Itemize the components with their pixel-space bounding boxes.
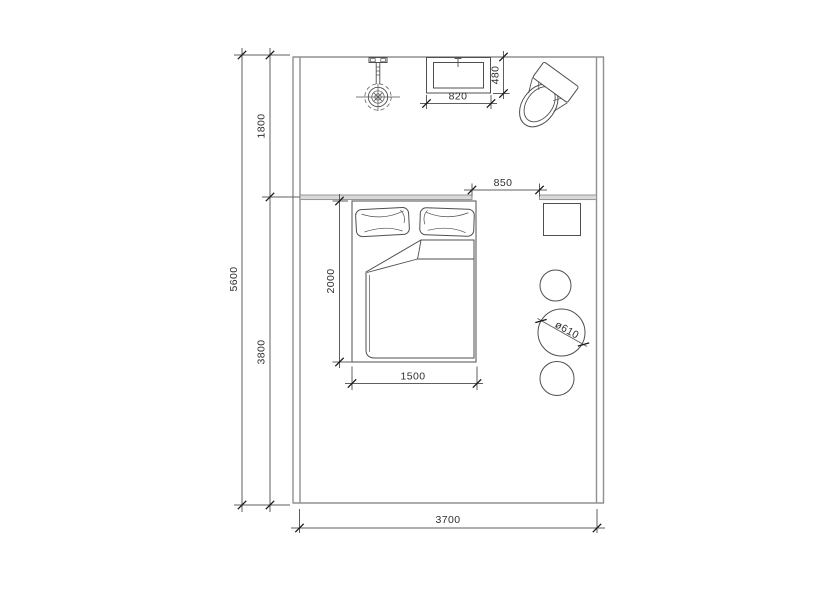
dimension-room-width: 3700: [291, 509, 605, 533]
dim-label-3800: 3800: [256, 340, 268, 365]
dim-label-1500: 1500: [401, 371, 426, 383]
dim-label-3700: 3700: [436, 514, 461, 526]
pillow-right-icon: [420, 208, 475, 237]
dim-label-480: 480: [490, 66, 502, 85]
dim-label-5600: 5600: [228, 267, 240, 292]
dimension-bed-width: 1500: [345, 367, 483, 391]
dimension-bed-length: 2000: [325, 194, 352, 368]
pillow-left-icon: [355, 207, 409, 237]
wash-basin-icon: [427, 58, 491, 94]
shower-head-icon: [356, 58, 400, 112]
stool-upper-icon: [540, 270, 571, 301]
dimension-basin-depth: 480: [490, 51, 510, 99]
stool-lower-icon: [540, 362, 574, 396]
dim-label-2000: 2000: [325, 269, 337, 294]
dimension-opening-width: 850: [464, 177, 547, 197]
nightstand-icon: [544, 204, 581, 236]
dim-label-850: 850: [494, 177, 513, 189]
dim-label-1800: 1800: [256, 114, 268, 139]
floor-plan-drawing: 5600 1800 3800 3700 820 480: [0, 0, 837, 592]
toilet-icon: [508, 62, 579, 137]
bed-icon: [352, 201, 476, 362]
floor-plan-canvas: 5600 1800 3800 3700 820 480: [0, 0, 837, 592]
dim-label-820: 820: [449, 91, 468, 103]
partition-wall: [300, 195, 597, 200]
